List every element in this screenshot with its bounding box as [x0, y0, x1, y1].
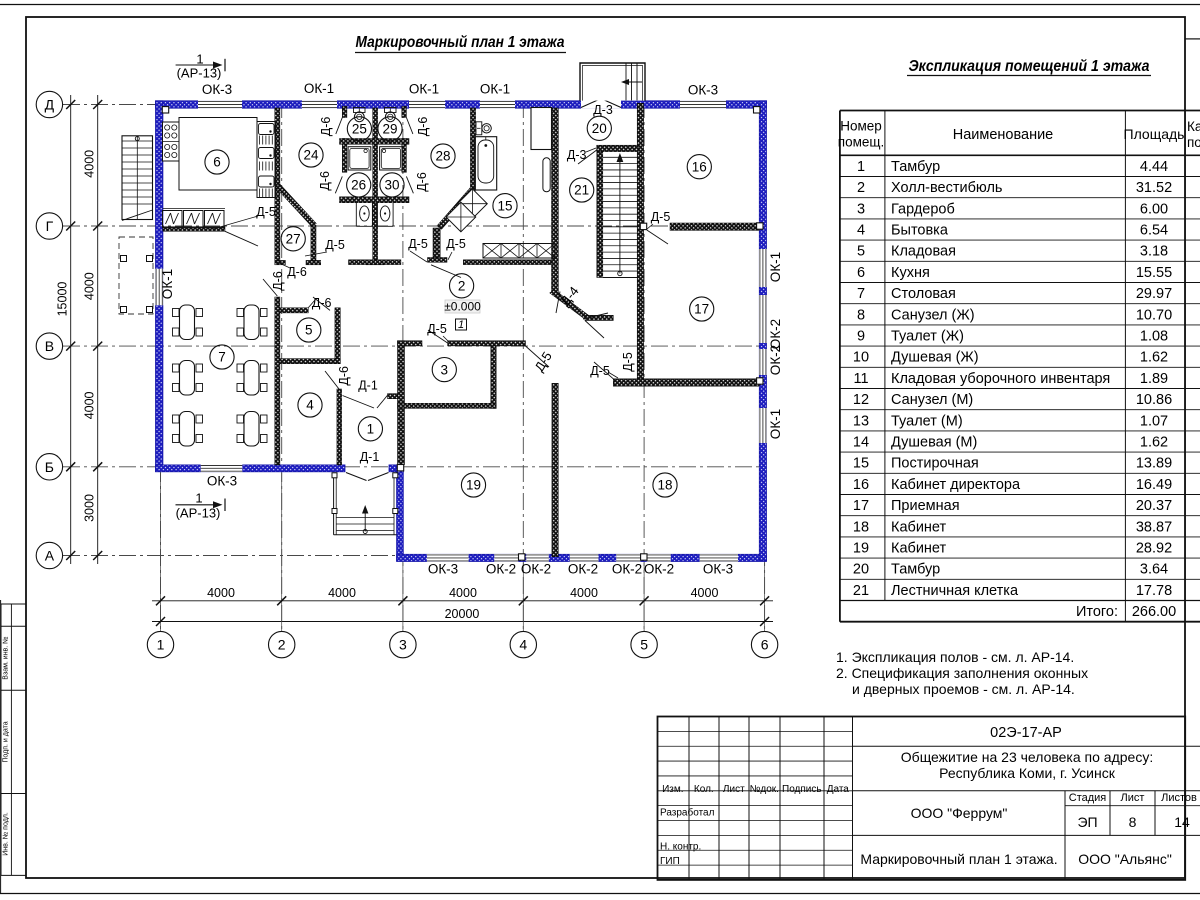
svg-text:2. Спецификация заполнения око: 2. Спецификация заполнения оконных — [836, 665, 1088, 681]
svg-text:Д-6: Д-6 — [312, 296, 332, 310]
svg-text:по: по — [1187, 135, 1200, 150]
svg-text:20: 20 — [592, 121, 607, 136]
svg-text:6: 6 — [761, 637, 769, 653]
svg-text:Душевая (Ж): Душевая (Ж) — [891, 350, 979, 366]
svg-text:Туалет (М): Туалет (М) — [891, 413, 963, 429]
svg-text:8: 8 — [1129, 814, 1137, 830]
svg-text:20000: 20000 — [445, 607, 480, 621]
svg-text:Д-5: Д-5 — [446, 237, 466, 251]
svg-text:Д-1: Д-1 — [358, 379, 378, 393]
svg-text:7: 7 — [857, 286, 865, 302]
svg-text:1.07: 1.07 — [1140, 413, 1168, 429]
svg-text:4.44: 4.44 — [1140, 159, 1168, 175]
svg-text:3: 3 — [441, 362, 449, 377]
svg-text:11: 11 — [853, 371, 868, 387]
svg-text:Санузел (М): Санузел (М) — [891, 392, 973, 408]
svg-text:ОК-2: ОК-2 — [768, 345, 783, 375]
svg-text:27: 27 — [286, 232, 301, 247]
svg-text:14: 14 — [1174, 814, 1190, 830]
svg-text:Туалет (Ж): Туалет (Ж) — [891, 329, 964, 345]
svg-text:10.70: 10.70 — [1136, 307, 1172, 323]
svg-text:6.54: 6.54 — [1140, 223, 1168, 239]
svg-text:3: 3 — [399, 637, 407, 653]
svg-text:14: 14 — [853, 435, 869, 451]
svg-text:17: 17 — [694, 302, 709, 317]
svg-text:Взам. инв. №: Взам. инв. № — [3, 636, 10, 679]
svg-text:29: 29 — [382, 122, 397, 137]
svg-text:15: 15 — [853, 456, 869, 472]
svg-text:ГИП: ГИП — [660, 856, 680, 867]
svg-text:Республика Коми, г. Усинск: Республика Коми, г. Усинск — [939, 765, 1116, 781]
svg-text:Д-5: Д-5 — [427, 322, 447, 336]
svg-text:02Э-17-АР: 02Э-17-АР — [990, 725, 1062, 741]
svg-text:ОК-2: ОК-2 — [568, 562, 598, 577]
svg-text:2: 2 — [278, 637, 286, 653]
svg-text:Маркировочный план 1 этажа.: Маркировочный план 1 этажа. — [860, 851, 1057, 867]
svg-text:13.89: 13.89 — [1136, 456, 1172, 472]
svg-text:Д-5: Д-5 — [651, 210, 671, 224]
svg-text:20.37: 20.37 — [1136, 498, 1172, 514]
svg-text:Д-3: Д-3 — [567, 148, 587, 162]
svg-text:1.89: 1.89 — [1140, 371, 1168, 387]
svg-text:31.52: 31.52 — [1136, 180, 1172, 196]
svg-text:ОК-3: ОК-3 — [207, 474, 237, 489]
svg-text:Приемная: Приемная — [891, 498, 960, 514]
svg-text:Кладовая уборочного инвентаря: Кладовая уборочного инвентаря — [891, 371, 1110, 387]
svg-text:4000: 4000 — [83, 391, 97, 419]
svg-text:21: 21 — [853, 583, 869, 599]
svg-text:Дата: Дата — [827, 784, 850, 795]
svg-text:Постирочная: Постирочная — [891, 456, 979, 472]
svg-text:28: 28 — [435, 149, 450, 164]
svg-text:4: 4 — [857, 223, 865, 239]
svg-text:1: 1 — [458, 319, 464, 331]
svg-text:Столовая: Столовая — [891, 286, 956, 302]
svg-text:1. Экспликация полов - см. л.: 1. Экспликация полов - см. л. АР-14. — [836, 649, 1074, 665]
svg-text:Маркировочный план 1 этажа: Маркировочный план 1 этажа — [356, 34, 565, 51]
svg-text:ОК-3: ОК-3 — [703, 562, 733, 577]
svg-text:5: 5 — [857, 244, 865, 260]
svg-text:4000: 4000 — [83, 150, 97, 178]
svg-text:4000: 4000 — [207, 586, 235, 600]
svg-text:15: 15 — [497, 198, 512, 213]
svg-text:Санузел (Ж): Санузел (Ж) — [891, 307, 975, 323]
svg-text:4: 4 — [519, 637, 527, 653]
svg-text:Д-1: Д-1 — [360, 450, 380, 464]
svg-text:Общежитие на 23 человека по ад: Общежитие на 23 человека по адресу: — [901, 749, 1153, 765]
svg-text:ЭП: ЭП — [1077, 814, 1097, 830]
svg-text:6: 6 — [213, 155, 221, 170]
svg-text:3: 3 — [857, 201, 865, 217]
svg-text:16.49: 16.49 — [1136, 477, 1172, 493]
svg-text:В: В — [45, 338, 54, 354]
svg-text:1.62: 1.62 — [1140, 350, 1168, 366]
svg-text:15.55: 15.55 — [1136, 265, 1172, 281]
svg-text:266.00: 266.00 — [1132, 604, 1176, 620]
svg-text:8: 8 — [857, 307, 865, 323]
svg-text:Д: Д — [45, 97, 55, 113]
svg-text:Д-6: Д-6 — [337, 366, 351, 386]
svg-text:2: 2 — [458, 279, 466, 294]
svg-text:ОК-1: ОК-1 — [480, 82, 510, 97]
svg-text:ОК-1: ОК-1 — [768, 409, 783, 439]
svg-text:9: 9 — [857, 329, 865, 345]
svg-text:Наименование: Наименование — [953, 127, 1054, 143]
svg-text:ОК-1: ОК-1 — [768, 252, 783, 282]
svg-text:Подпись: Подпись — [782, 784, 822, 795]
svg-text:13: 13 — [853, 413, 869, 429]
svg-text:ОК-1: ОК-1 — [304, 81, 334, 96]
svg-text:7: 7 — [218, 350, 226, 365]
svg-text:10.86: 10.86 — [1136, 392, 1172, 408]
svg-text:Кухня: Кухня — [891, 265, 930, 281]
svg-text:6: 6 — [857, 265, 865, 281]
svg-text:24: 24 — [303, 148, 319, 163]
svg-text:ОК-2: ОК-2 — [768, 319, 783, 349]
svg-text:1: 1 — [196, 51, 203, 66]
svg-text:19: 19 — [853, 541, 869, 557]
svg-text:12: 12 — [853, 392, 869, 408]
svg-text:5: 5 — [305, 323, 313, 338]
svg-text:Д-6: Д-6 — [415, 172, 429, 192]
svg-text:3.64: 3.64 — [1140, 562, 1168, 578]
svg-text:Кабинет: Кабинет — [891, 519, 947, 535]
svg-text:ОК-2: ОК-2 — [521, 562, 551, 577]
svg-text:20: 20 — [853, 562, 869, 578]
svg-text:1: 1 — [367, 422, 375, 437]
svg-text:ОК-3: ОК-3 — [202, 82, 232, 97]
svg-text:Д-6: Д-6 — [271, 271, 285, 291]
svg-text:ОК-3: ОК-3 — [428, 562, 458, 577]
svg-text:17: 17 — [853, 498, 869, 514]
svg-text:30: 30 — [384, 178, 399, 193]
svg-text:Номер: Номер — [840, 119, 882, 134]
svg-text:ОК-3: ОК-3 — [688, 83, 718, 98]
svg-text:18: 18 — [657, 478, 672, 493]
svg-text:Душевая (М): Душевая (М) — [891, 435, 977, 451]
svg-text:1: 1 — [195, 491, 202, 506]
svg-text:ОК-2: ОК-2 — [612, 562, 642, 577]
svg-text:16: 16 — [692, 159, 707, 174]
svg-text:Тамбур: Тамбур — [891, 562, 940, 578]
svg-text:3.18: 3.18 — [1140, 244, 1168, 260]
svg-text:18: 18 — [853, 519, 869, 535]
svg-text:Д-6: Д-6 — [287, 265, 307, 279]
svg-text:№док.: №док. — [750, 784, 779, 795]
svg-text:28.92: 28.92 — [1136, 541, 1172, 557]
svg-text:Лист: Лист — [723, 784, 745, 795]
svg-text:4: 4 — [306, 398, 314, 413]
svg-text:5: 5 — [640, 637, 648, 653]
svg-text:Кабинет директора: Кабинет директора — [891, 477, 1021, 493]
svg-text:Г: Г — [46, 218, 54, 234]
svg-text:26: 26 — [351, 178, 366, 193]
svg-text:16: 16 — [853, 477, 869, 493]
svg-text:Изм.: Изм. — [662, 784, 683, 795]
svg-text:ОК-1: ОК-1 — [409, 82, 439, 97]
svg-text:Д-5: Д-5 — [256, 205, 276, 219]
svg-text:4000: 4000 — [570, 586, 598, 600]
svg-text:29.97: 29.97 — [1136, 286, 1172, 302]
svg-text:±0.000: ±0.000 — [444, 300, 481, 314]
svg-text:Листов: Листов — [1161, 792, 1197, 804]
svg-text:10: 10 — [853, 350, 869, 366]
svg-text:2: 2 — [857, 180, 865, 196]
svg-text:Тамбур: Тамбур — [891, 159, 940, 175]
svg-text:Инв. № подл.: Инв. № подл. — [3, 812, 10, 856]
svg-text:38.87: 38.87 — [1136, 519, 1172, 535]
svg-text:4000: 4000 — [83, 272, 97, 300]
svg-text:Холл-вестибюль: Холл-вестибюль — [891, 180, 1002, 196]
svg-text:Кабинет: Кабинет — [891, 541, 947, 557]
svg-text:Площадь: Площадь — [1124, 126, 1185, 142]
svg-text:ООО "Альянс": ООО "Альянс" — [1078, 851, 1172, 867]
svg-text:Лестничная клетка: Лестничная клетка — [891, 583, 1019, 599]
svg-text:Д-5: Д-5 — [590, 364, 610, 378]
svg-text:Подп. и дата: Подп. и дата — [3, 721, 10, 762]
svg-text:1.08: 1.08 — [1140, 329, 1168, 345]
svg-text:15000: 15000 — [56, 282, 70, 317]
svg-text:Д-6: Д-6 — [416, 117, 430, 137]
svg-text:Д-5: Д-5 — [408, 237, 428, 251]
svg-text:19: 19 — [466, 478, 481, 493]
svg-text:Кол.: Кол. — [694, 784, 714, 795]
svg-text:1.62: 1.62 — [1140, 435, 1168, 451]
svg-text:А: А — [45, 548, 55, 564]
svg-text:Б: Б — [45, 459, 54, 475]
svg-text:Гардероб: Гардероб — [891, 201, 955, 217]
svg-text:Кладовая: Кладовая — [891, 244, 956, 260]
svg-text:Д-6: Д-6 — [318, 171, 332, 191]
svg-text:21: 21 — [574, 183, 589, 198]
svg-text:Разработал: Разработал — [660, 807, 715, 819]
svg-text:4000: 4000 — [691, 586, 719, 600]
svg-text:Стадия: Стадия — [1069, 792, 1107, 804]
svg-text:Ка: Ка — [1187, 119, 1200, 134]
svg-text:Д-3: Д-3 — [593, 103, 613, 117]
svg-text:помещ.: помещ. — [838, 135, 884, 150]
svg-text:3000: 3000 — [83, 494, 97, 522]
svg-text:ООО "Феррум": ООО "Феррум" — [911, 805, 1008, 821]
svg-text:1: 1 — [157, 637, 165, 653]
svg-text:Н. контр.: Н. контр. — [660, 842, 701, 853]
svg-text:1: 1 — [857, 159, 865, 175]
svg-text:ОК-1: ОК-1 — [160, 269, 175, 299]
svg-text:17.78: 17.78 — [1136, 583, 1172, 599]
svg-text:Лист: Лист — [1121, 792, 1145, 804]
svg-text:Д-5: Д-5 — [325, 238, 345, 252]
svg-text:и дверных проемов - см. л. АР-: и дверных проемов - см. л. АР-14. — [852, 681, 1075, 697]
svg-text:25: 25 — [352, 122, 367, 137]
svg-text:Бытовка: Бытовка — [891, 223, 949, 239]
svg-text:4000: 4000 — [328, 586, 356, 600]
svg-text:4000: 4000 — [449, 586, 477, 600]
svg-text:Д-6: Д-6 — [319, 117, 333, 137]
svg-text:ОК-2: ОК-2 — [644, 562, 674, 577]
svg-text:6.00: 6.00 — [1140, 201, 1168, 217]
svg-text:Экспликация помещений 1 этажа: Экспликация помещений 1 этажа — [909, 58, 1150, 75]
svg-text:ОК-2: ОК-2 — [486, 562, 516, 577]
svg-text:Д-5: Д-5 — [621, 352, 635, 372]
svg-text:Итого:: Итого: — [1076, 604, 1118, 620]
